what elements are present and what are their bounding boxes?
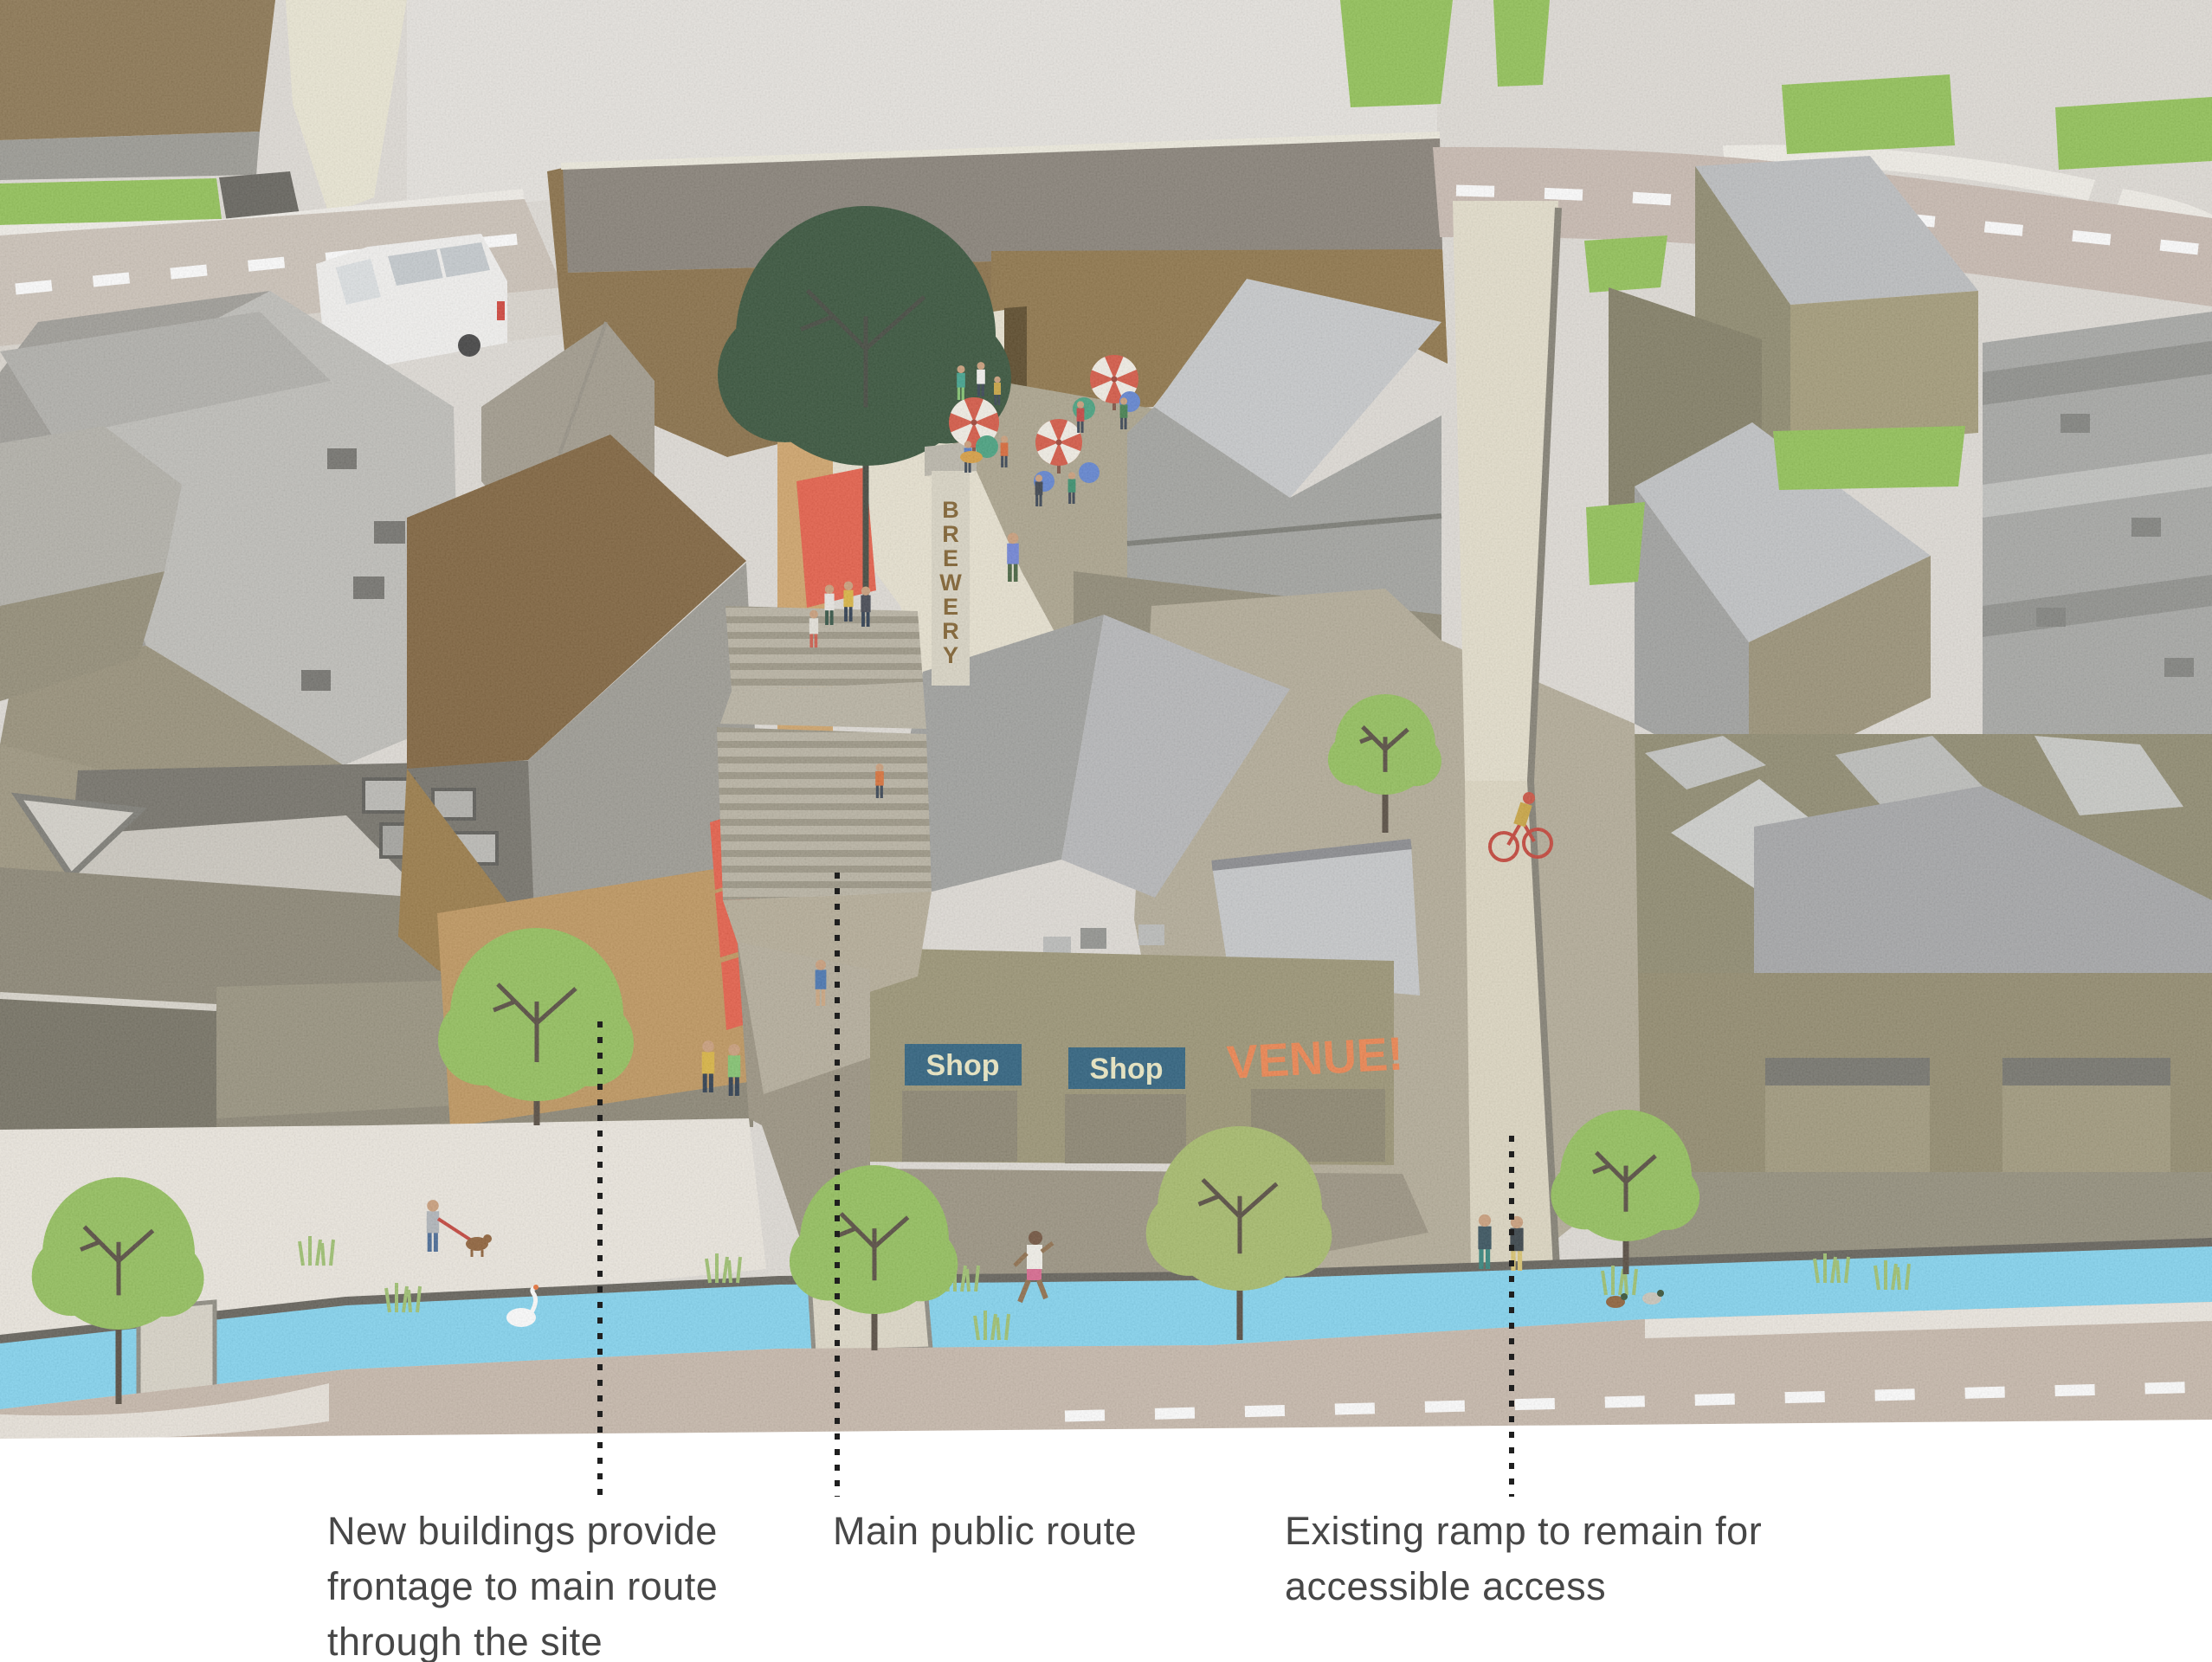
svg-text:accessible access: accessible access [1285,1564,1606,1608]
svg-text:frontage to main route: frontage to main route [327,1564,718,1608]
svg-text:Main public route: Main public route [833,1509,1137,1553]
svg-text:New buildings provide: New buildings provide [327,1509,718,1553]
svg-text:through the site: through the site [327,1620,603,1662]
svg-text:Existing ramp to remain for: Existing ramp to remain for [1285,1509,1762,1553]
